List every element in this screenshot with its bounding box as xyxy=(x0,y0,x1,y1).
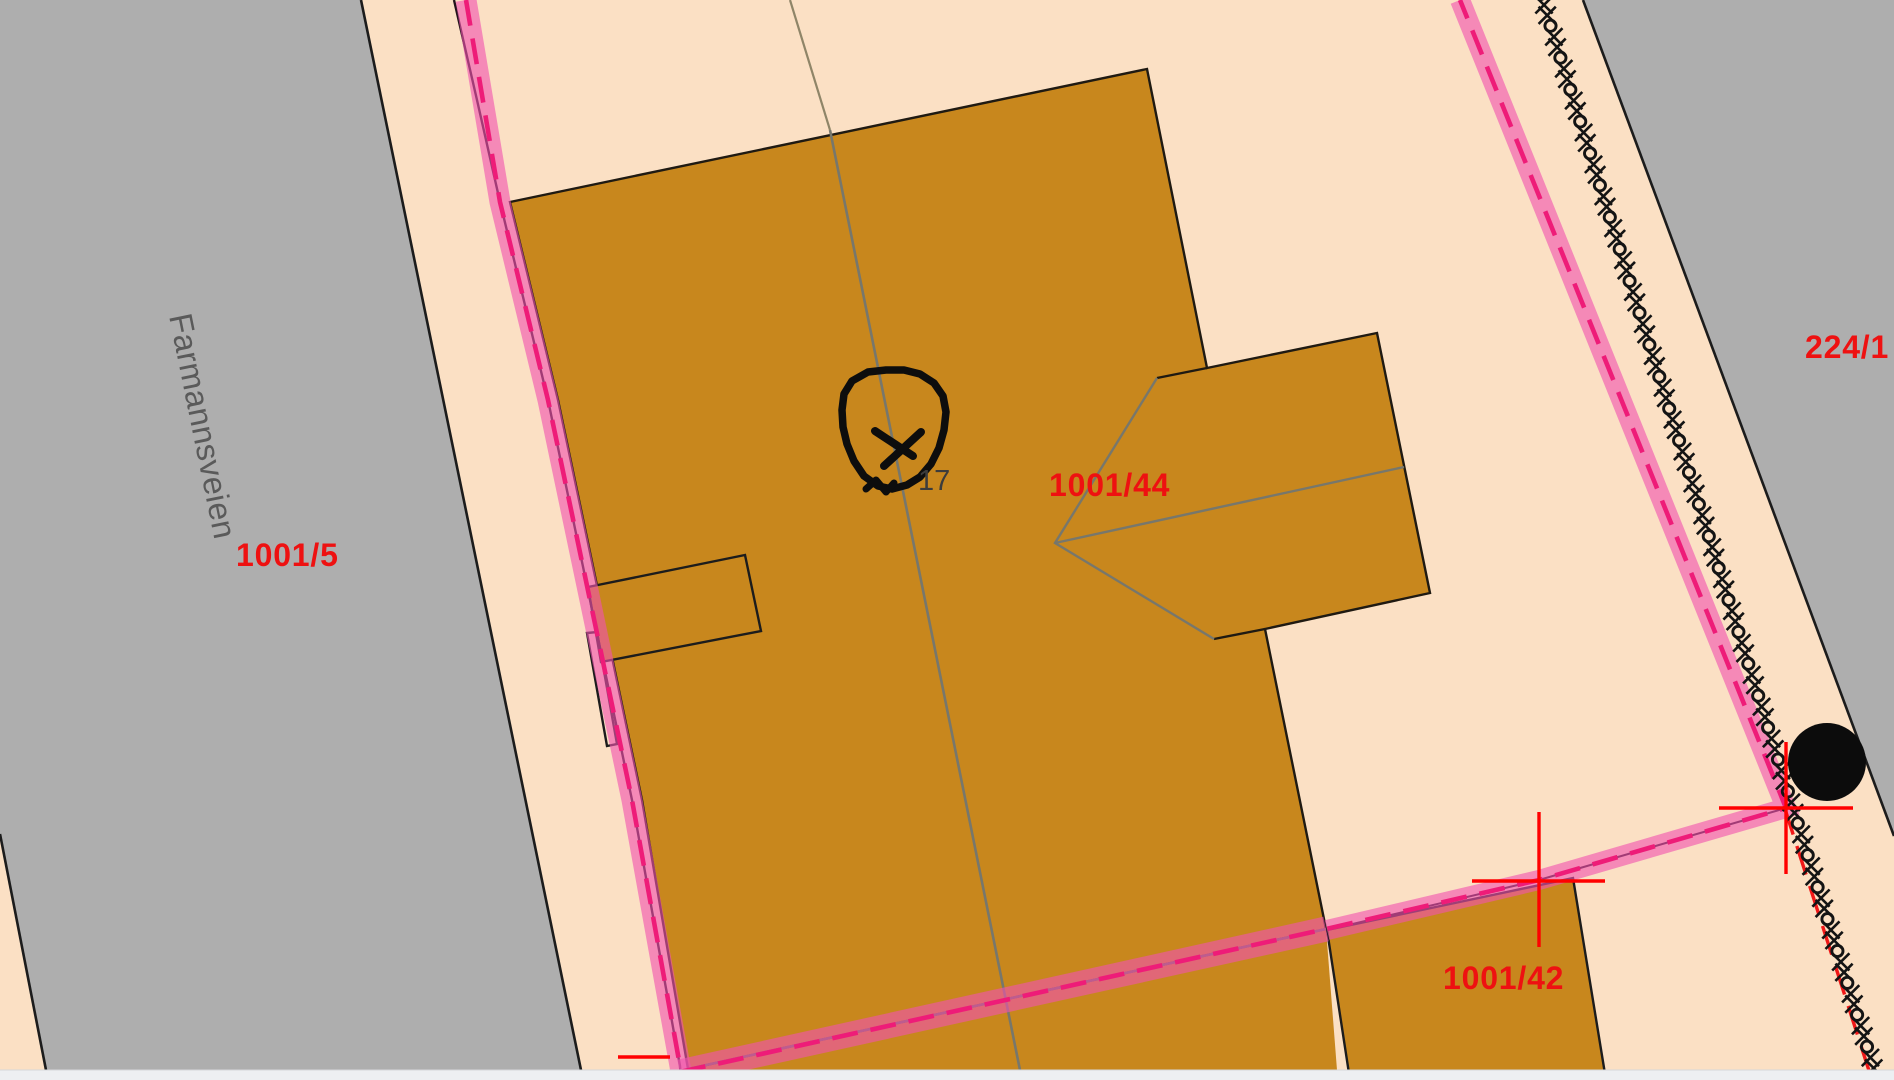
svg-text:1001/44: 1001/44 xyxy=(1049,467,1170,503)
svg-text:1001/5: 1001/5 xyxy=(236,537,339,573)
svg-text:17: 17 xyxy=(918,465,950,497)
svg-text:1001/42: 1001/42 xyxy=(1443,960,1564,996)
svg-text:224/1: 224/1 xyxy=(1805,329,1889,365)
